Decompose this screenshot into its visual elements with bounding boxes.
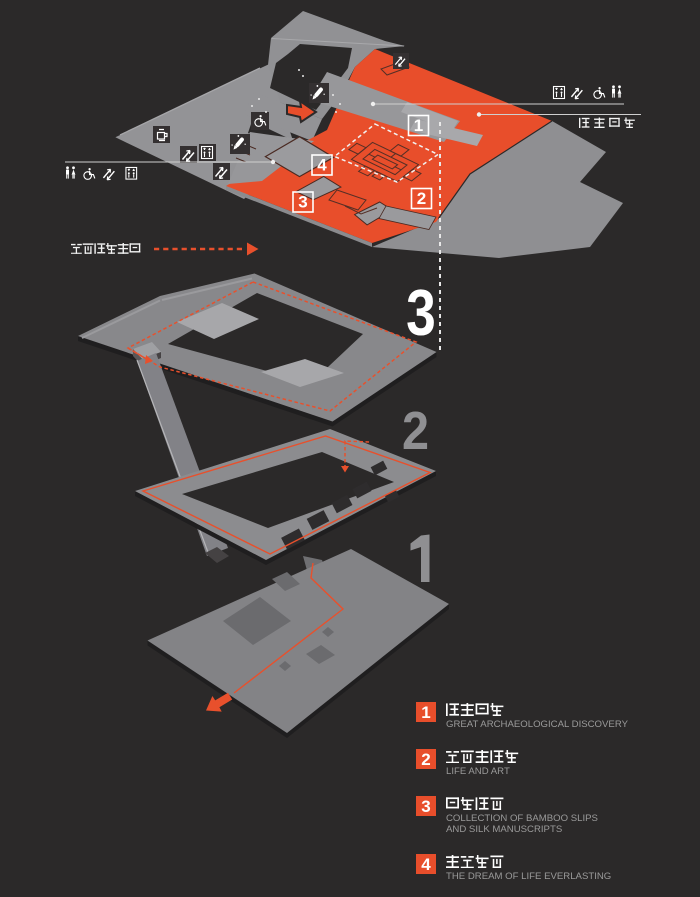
svg-text:2: 2 bbox=[421, 750, 430, 769]
svg-text:COLLECTION OF BAMBOO SLIPS: COLLECTION OF BAMBOO SLIPS bbox=[446, 813, 598, 824]
svg-text:3: 3 bbox=[406, 276, 436, 349]
svg-text:4: 4 bbox=[421, 855, 431, 874]
svg-text:THE DREAM OF LIFE EVERLASTING: THE DREAM OF LIFE EVERLASTING bbox=[446, 871, 611, 882]
svg-text:4: 4 bbox=[317, 156, 327, 175]
svg-text:3: 3 bbox=[421, 797, 430, 816]
svg-text:2: 2 bbox=[402, 400, 429, 461]
svg-text:AND SILK MANUSCRIPTS: AND SILK MANUSCRIPTS bbox=[446, 824, 562, 835]
svg-text:3: 3 bbox=[298, 193, 307, 212]
svg-text:2: 2 bbox=[417, 189, 426, 208]
svg-text:1: 1 bbox=[414, 116, 423, 135]
svg-text:LIFE AND ART: LIFE AND ART bbox=[446, 766, 510, 777]
svg-text:GREAT ARCHAEOLOGICAL DISCOVERY: GREAT ARCHAEOLOGICAL DISCOVERY bbox=[446, 719, 629, 730]
svg-text:1: 1 bbox=[421, 703, 430, 722]
